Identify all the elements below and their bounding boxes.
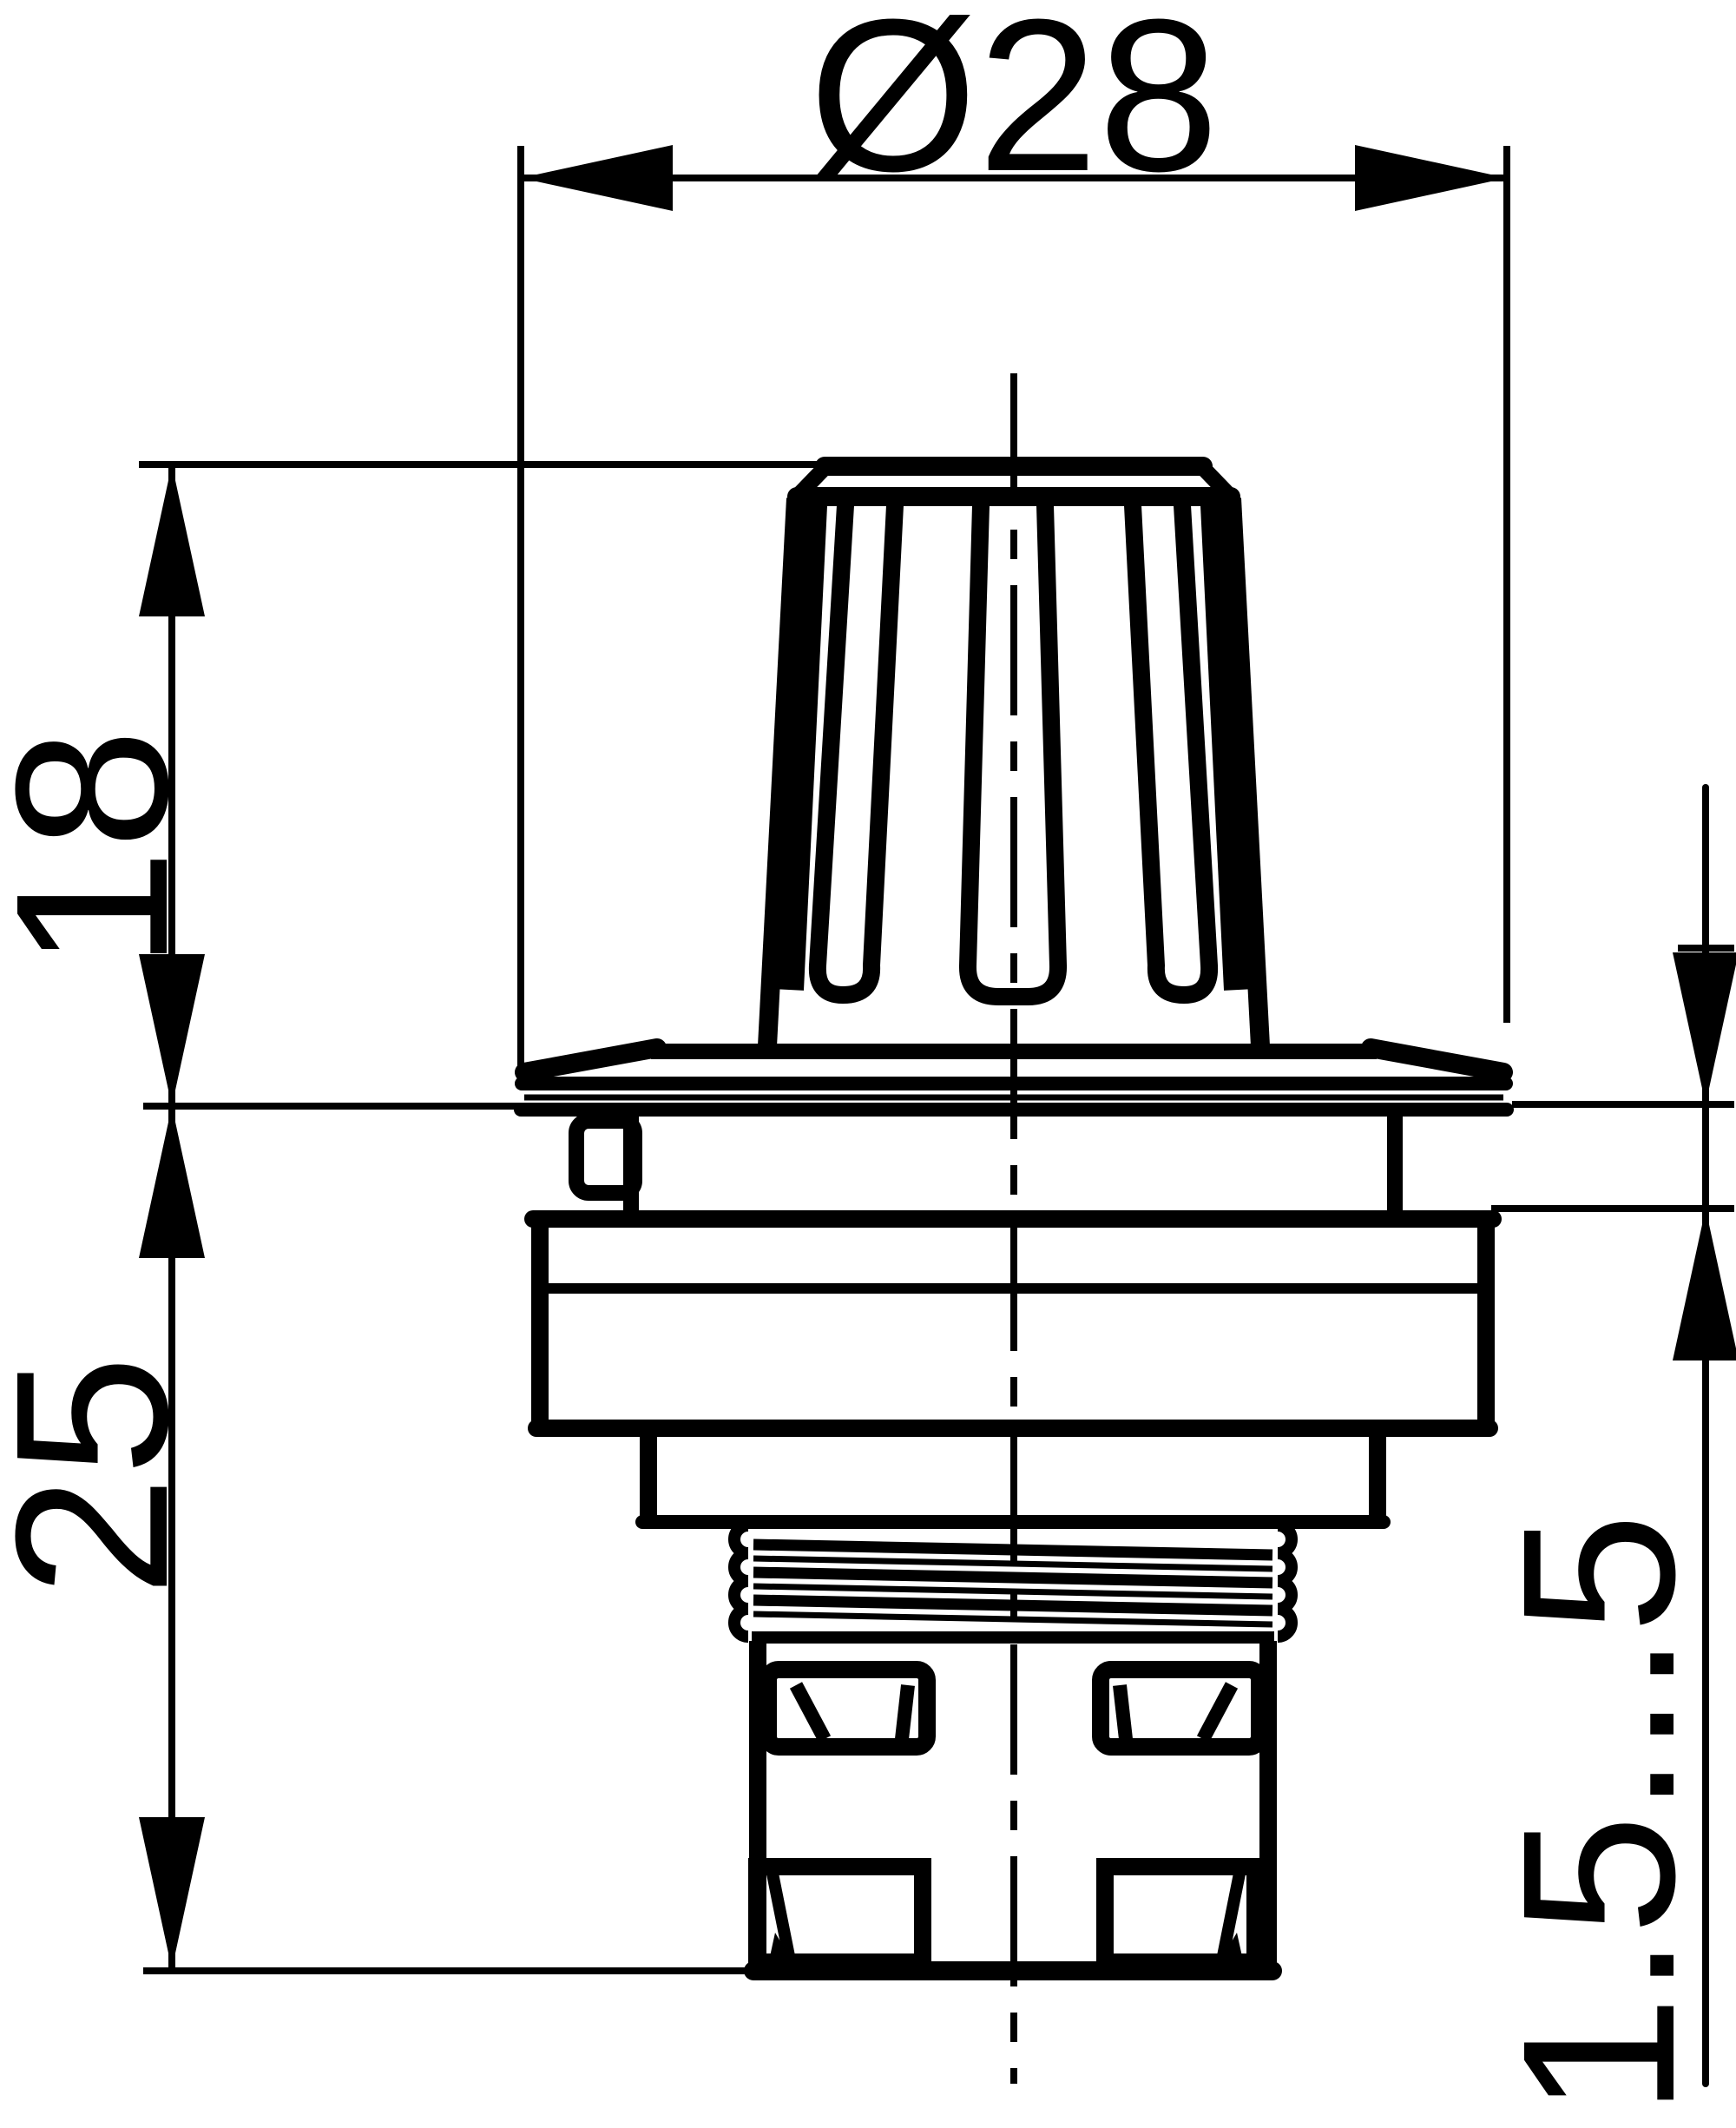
dimension-label-knob-height: 18 [0,728,213,970]
arrowhead-down [139,954,205,1106]
arrowhead-down [139,1817,205,1969]
arrowhead-up [139,464,205,616]
knob-groove-left [818,505,895,995]
arrowhead-up [139,1106,205,1258]
flange-right-bevel [1371,1048,1503,1072]
thread-crest-line [753,1600,1272,1611]
thread-left-profile [734,1525,748,1637]
dimension-panel-range: 1.5...5 [1477,787,1736,2116]
dimension-label-body-depth: 25 [0,1355,213,1597]
arrowhead-right [1355,145,1507,211]
dimension-label-panel-range: 1.5...5 [1477,1513,1720,2117]
thread-crest-line [753,1545,1272,1555]
clip-finger-upper-right-edge [1120,1685,1126,1739]
arrowhead-down [1673,952,1736,1104]
flange-left-bevel [524,1048,657,1072]
drawing-sheet: Ø28 18 25 1.5...5 [0,0,1736,2128]
thread-right-profile [1278,1525,1292,1637]
clip-finger-upper-right-diagonal [1203,1685,1232,1739]
clip-finger-upper-left-edge [902,1685,908,1739]
technical-drawing-canvas: Ø28 18 25 1.5...5 [0,0,1736,2128]
dimension-knob-height: 18 [0,464,821,1106]
clip-finger-upper-left-diagonal [796,1685,825,1739]
arrowhead-up [1673,1209,1736,1360]
thread-crest-line [753,1572,1272,1583]
arrowhead-left [521,145,673,211]
dimension-label-diameter: Ø28 [809,0,1220,216]
dimension-body-depth: 25 [0,1106,755,1971]
knob-groove-right [1133,505,1209,995]
flange [521,1048,1507,1110]
neck [576,1117,1395,1214]
